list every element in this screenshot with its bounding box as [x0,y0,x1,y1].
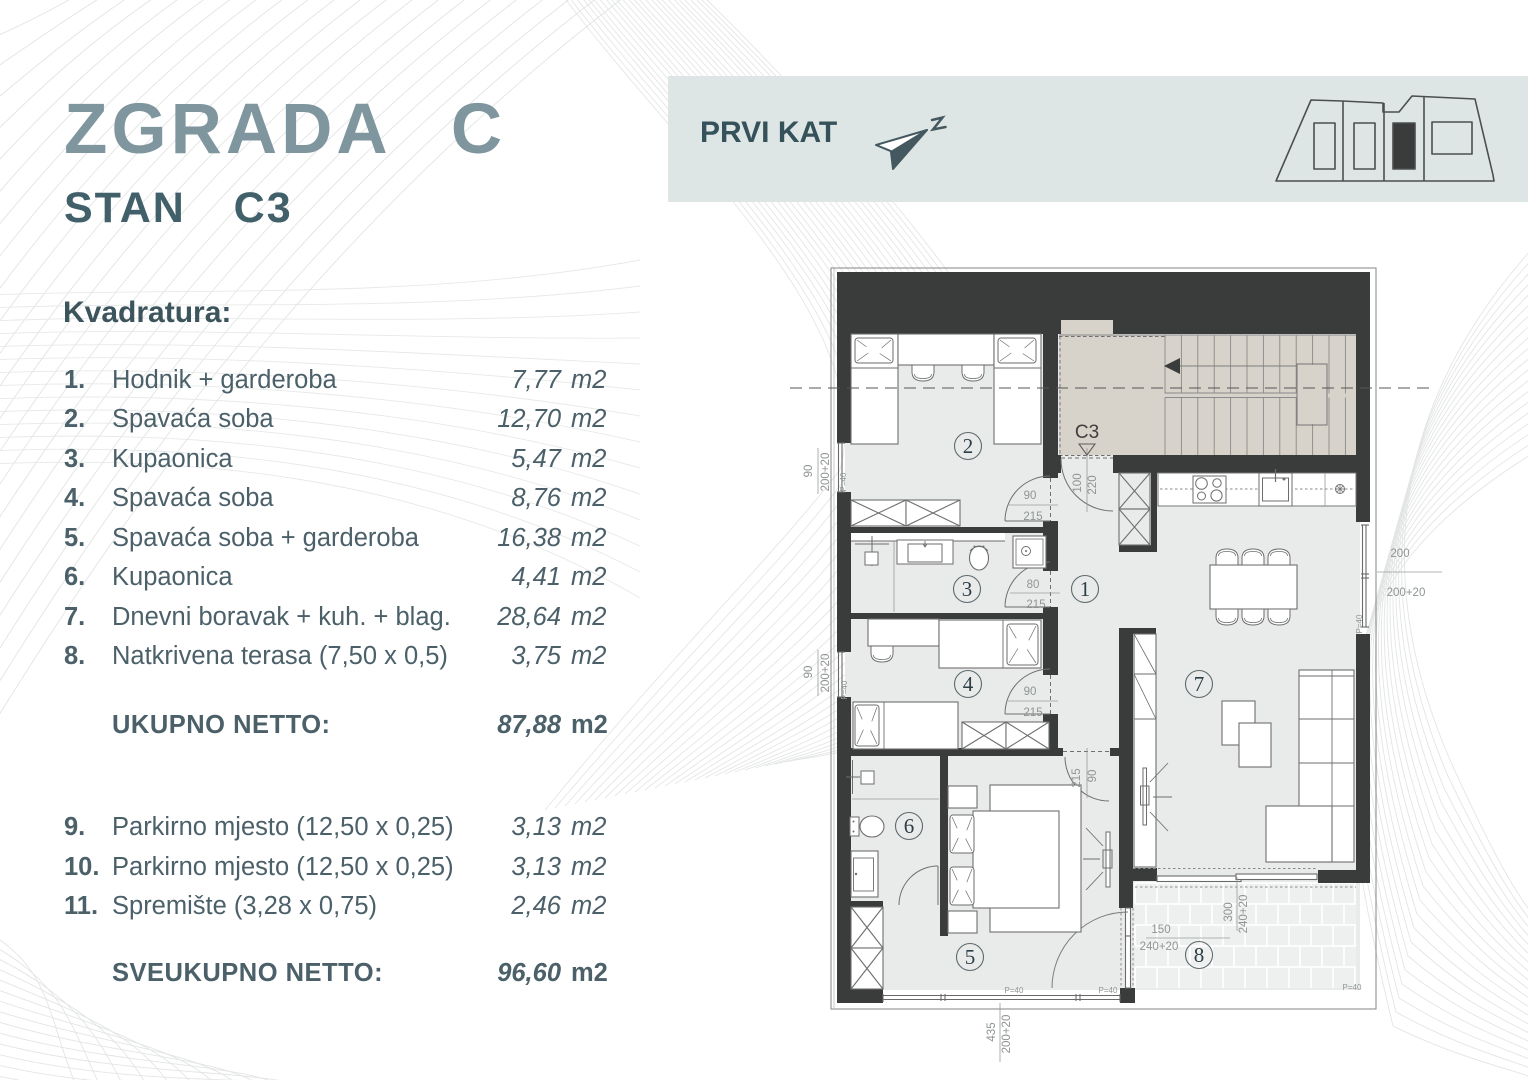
svg-text:90: 90 [1024,490,1037,502]
svg-text:P=40: P=40 [1343,983,1362,992]
svg-text:P=40: P=40 [1099,986,1118,995]
svg-text:2: 2 [963,434,974,458]
svg-text:200+20: 200+20 [820,453,832,492]
svg-text:215: 215 [1071,768,1083,787]
svg-text:7: 7 [1194,672,1205,696]
svg-text:215: 215 [1023,707,1042,719]
svg-text:150: 150 [1151,924,1170,936]
svg-text:P=40: P=40 [1005,986,1024,995]
svg-text:200: 200 [1390,548,1409,560]
svg-text:6: 6 [904,814,915,838]
svg-text:P=40: P=40 [839,472,848,491]
svg-text:200+20: 200+20 [1001,1015,1013,1054]
svg-text:435: 435 [986,1022,998,1041]
svg-text:240+20: 240+20 [1238,895,1250,934]
svg-text:100: 100 [1072,473,1084,492]
svg-text:215: 215 [1023,511,1042,523]
svg-text:220: 220 [1087,475,1099,494]
svg-text:4: 4 [963,672,974,696]
svg-text:1: 1 [1080,577,1091,601]
svg-text:300: 300 [1223,902,1235,921]
svg-text:P=40: P=40 [840,680,849,699]
svg-text:200+20: 200+20 [820,654,832,693]
svg-text:80: 80 [1027,579,1040,591]
svg-text:90: 90 [803,666,815,679]
svg-text:5: 5 [965,945,976,969]
svg-text:90: 90 [803,465,815,478]
svg-text:C3: C3 [1075,422,1099,443]
svg-text:8: 8 [1194,943,1205,967]
svg-text:215: 215 [1026,599,1045,611]
svg-text:200+20: 200+20 [1387,587,1426,599]
svg-text:3: 3 [962,577,973,601]
svg-text:240+20: 240+20 [1140,941,1179,953]
svg-text:90: 90 [1024,686,1037,698]
svg-text:P=40: P=40 [1355,614,1364,633]
svg-text:90: 90 [1087,770,1099,783]
